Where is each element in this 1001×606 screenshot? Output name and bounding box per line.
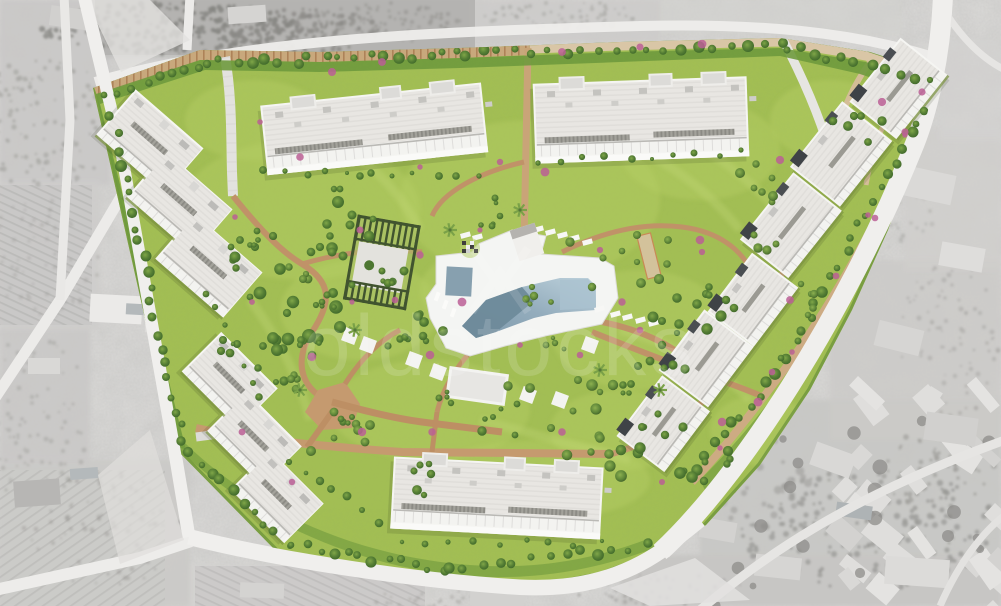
svg-text:oldstocks: oldstocks xyxy=(303,298,698,394)
